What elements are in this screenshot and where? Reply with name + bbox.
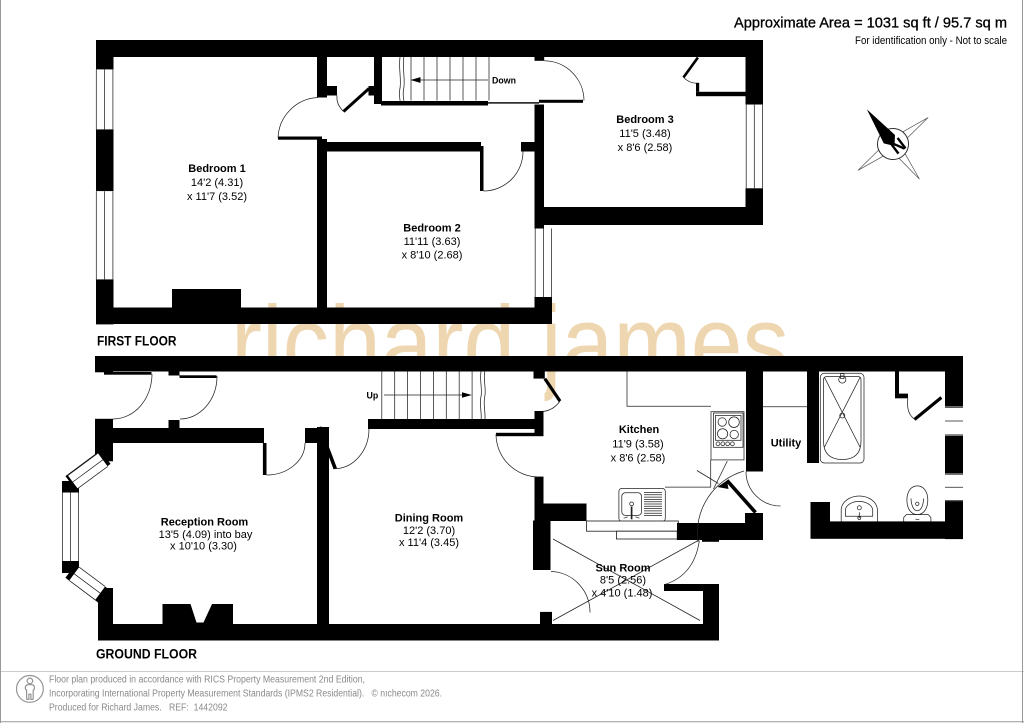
svg-text:Down: Down — [492, 76, 516, 86]
svg-text:FIRST FLOOR: FIRST FLOOR — [97, 334, 177, 349]
svg-text:Sun Room: Sun Room — [596, 563, 651, 575]
svg-text:13'5 (4.09) into bay: 13'5 (4.09) into bay — [159, 529, 253, 541]
svg-text:Reception Room: Reception Room — [161, 517, 249, 529]
svg-text:Dining Room: Dining Room — [395, 513, 464, 525]
svg-text:Approximate Area = 1031 sq ft: Approximate Area = 1031 sq ft / 95.7 sq … — [734, 16, 1007, 32]
svg-text:Produced for Richard James.: Produced for Richard James. REF: 1442092 — [49, 703, 228, 714]
svg-text:11'11 (3.63): 11'11 (3.63) — [404, 236, 461, 248]
svg-text:Bedroom 1: Bedroom 1 — [188, 163, 245, 175]
svg-text:Incorporating International Pr: Incorporating International Property Mea… — [49, 689, 442, 700]
svg-text:x 8'6 (2.58): x 8'6 (2.58) — [618, 142, 673, 154]
svg-text:x 4'10 (1.48): x 4'10 (1.48) — [592, 588, 653, 600]
svg-text:For identification only - Not: For identification only - Not to scale — [855, 35, 1007, 47]
svg-text:x 8'6 (2.58): x 8'6 (2.58) — [611, 453, 666, 465]
svg-text:x 10'10 (3.30): x 10'10 (3.30) — [170, 541, 237, 553]
svg-text:x 11'7 (3.52): x 11'7 (3.52) — [187, 191, 247, 203]
svg-text:11'9 (3.58): 11'9 (3.58) — [612, 439, 663, 451]
svg-text:x 8'10 (2.68): x 8'10 (2.68) — [402, 250, 463, 262]
svg-text:Up: Up — [367, 391, 379, 401]
svg-text:Kitchen: Kitchen — [619, 424, 660, 436]
svg-text:Floor plan produced in accorda: Floor plan produced in accordance with R… — [49, 675, 365, 686]
svg-text:x 11'4 (3.45): x 11'4 (3.45) — [399, 537, 459, 549]
svg-text:11'5 (3.48): 11'5 (3.48) — [619, 128, 670, 140]
svg-text:Bedroom 2: Bedroom 2 — [403, 223, 460, 235]
svg-text:GROUND FLOOR: GROUND FLOOR — [96, 647, 197, 662]
svg-text:Utility: Utility — [771, 438, 802, 450]
svg-text:Bedroom 3: Bedroom 3 — [616, 114, 673, 126]
svg-text:12'2 (3.70): 12'2 (3.70) — [403, 525, 455, 537]
svg-text:8'5 (2.56): 8'5 (2.56) — [600, 575, 646, 587]
svg-text:14'2 (4.31): 14'2 (4.31) — [191, 177, 243, 189]
